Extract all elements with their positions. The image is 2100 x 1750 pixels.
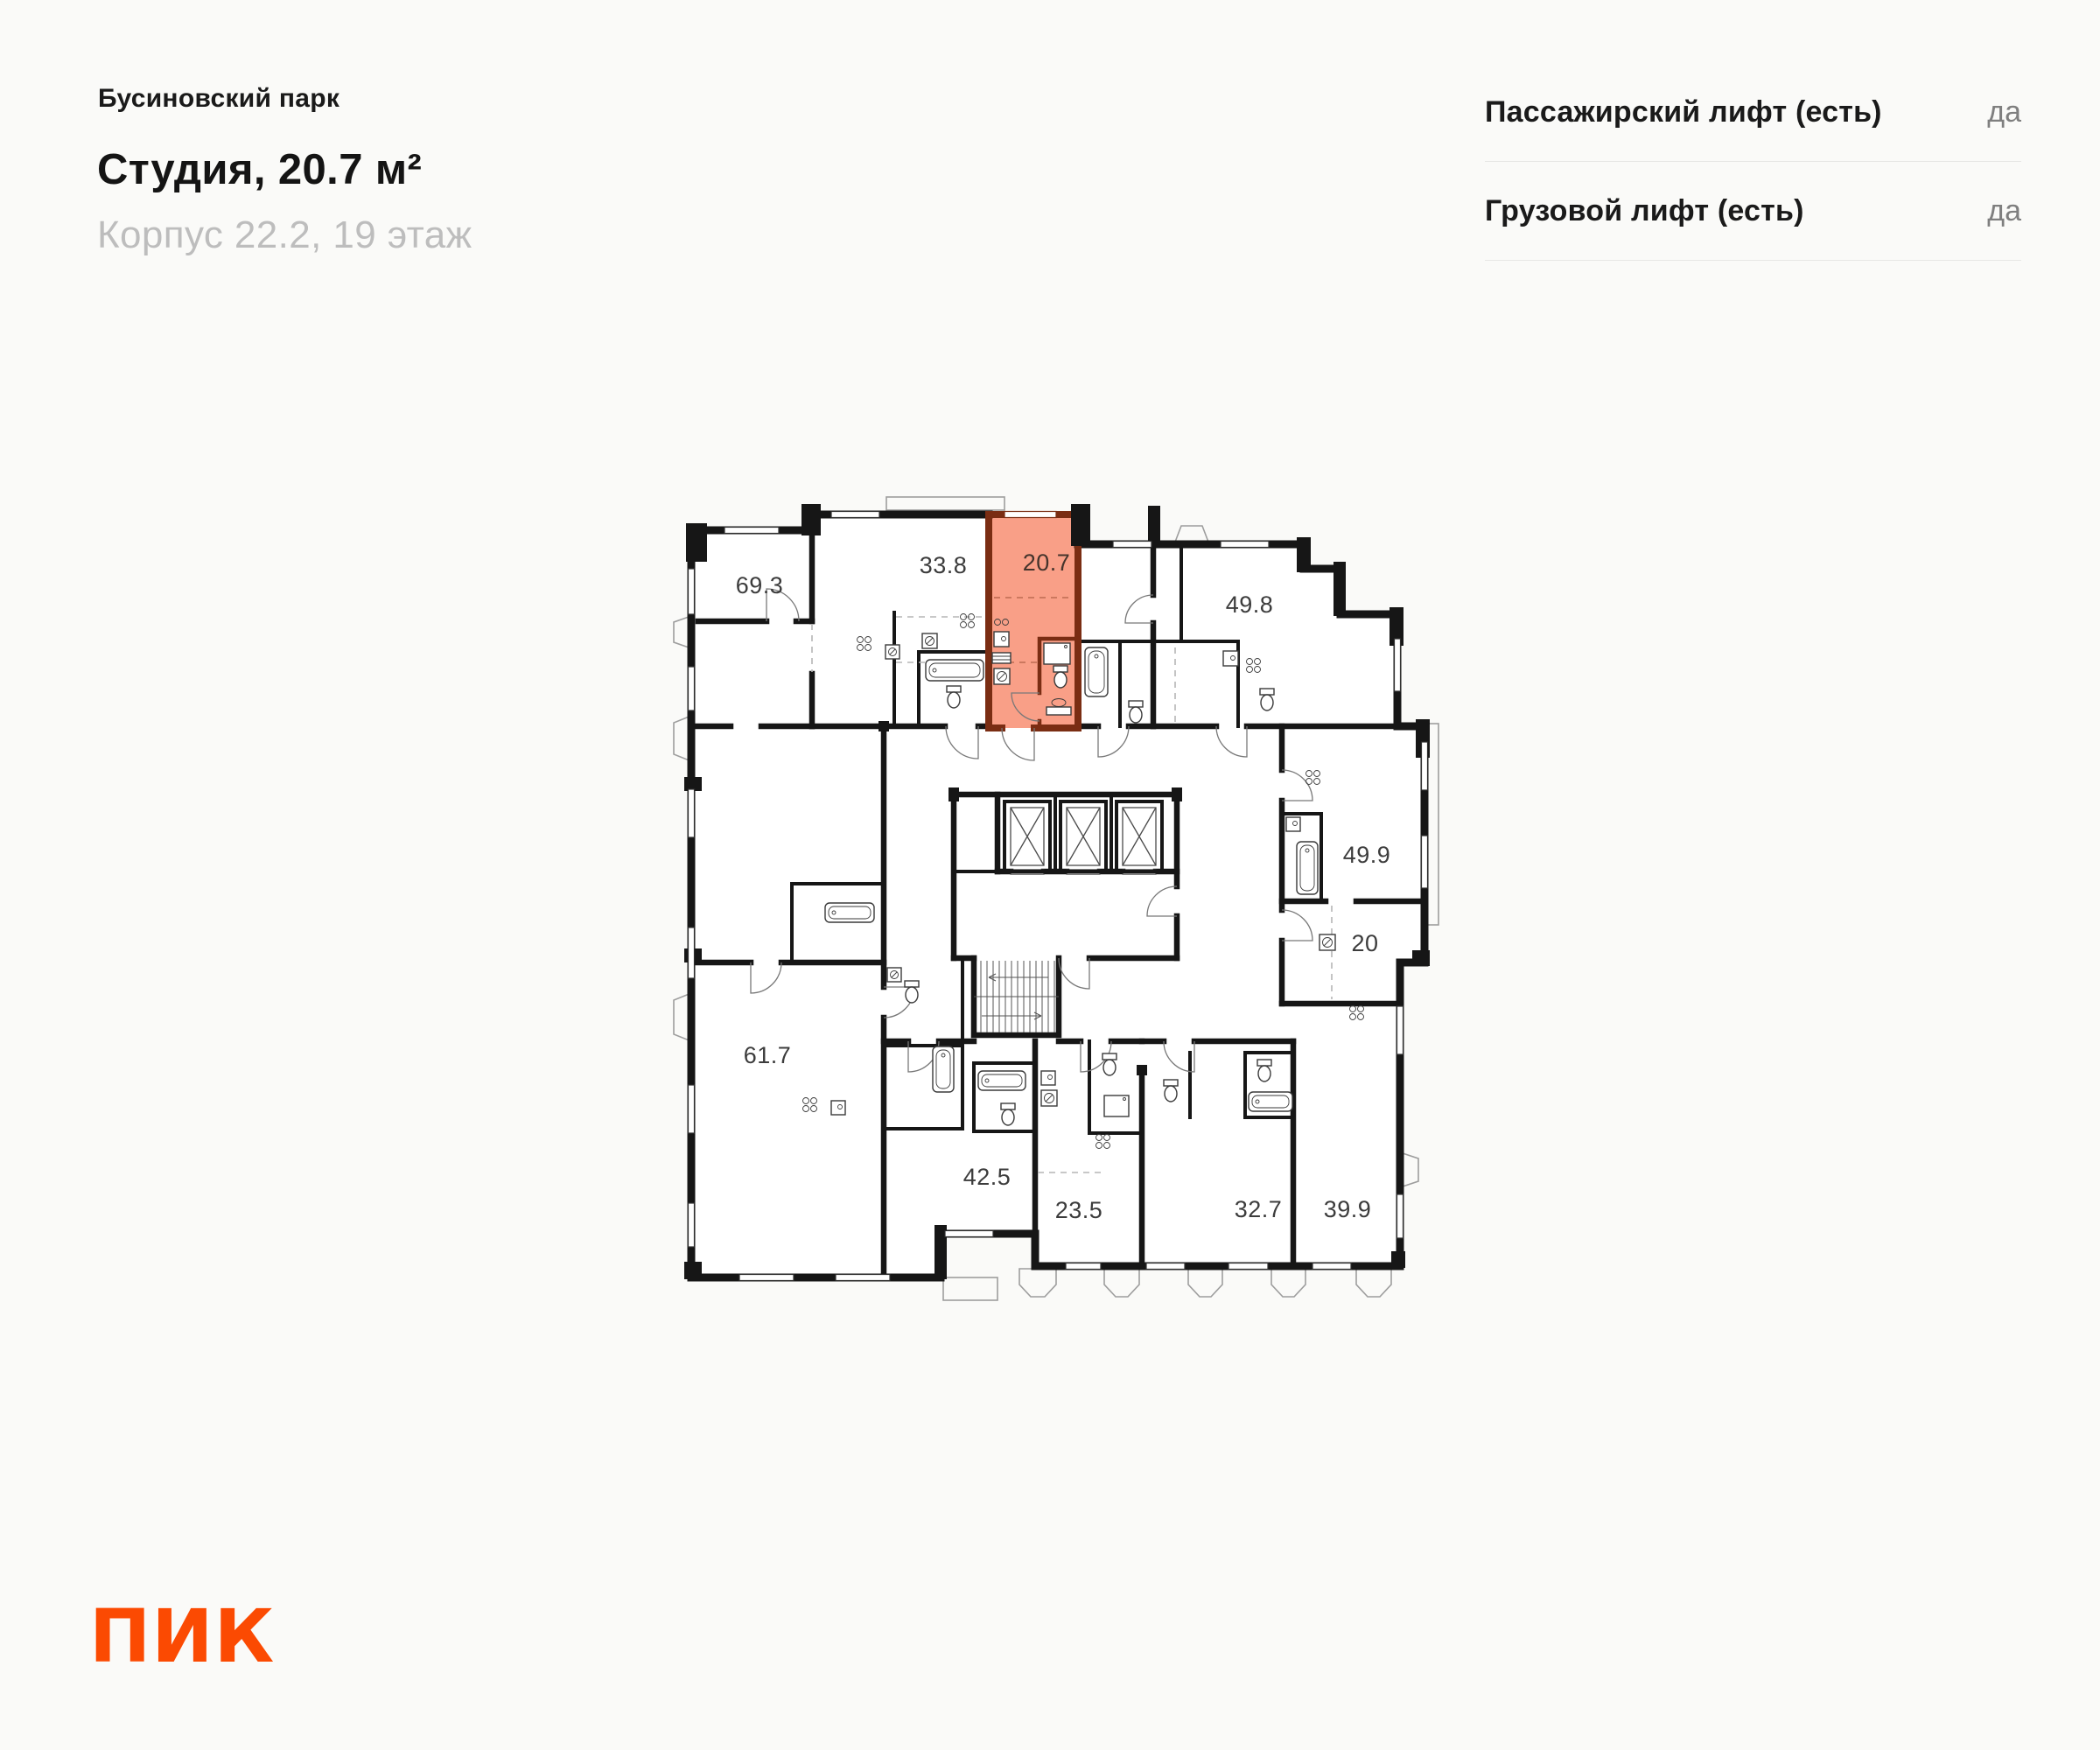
page-subtitle: Корпус 22.2, 19 этаж — [97, 213, 472, 257]
sink-icon — [994, 632, 1009, 647]
washing-machine-icon — [922, 633, 937, 648]
room-area-label: 20.7 — [1023, 549, 1071, 576]
sink-icon — [1223, 651, 1238, 666]
toilet-icon — [1164, 1080, 1178, 1102]
toilet-icon — [1257, 1060, 1271, 1081]
bathtub-icon — [1297, 842, 1318, 894]
room-area-label: 20 — [1351, 930, 1378, 956]
toilet-icon — [1102, 1053, 1116, 1075]
bathtub-icon — [1249, 1092, 1292, 1111]
sink-icon — [1286, 817, 1300, 831]
washing-machine-icon — [1041, 1090, 1057, 1106]
floor-plan-svg: 69.333.820.749.849.92061.742.523.532.739… — [647, 481, 1479, 1321]
spec-value: да — [1987, 194, 2021, 228]
toilet-icon — [1260, 689, 1274, 710]
shower-icon — [1044, 643, 1070, 664]
room-area-label: 61.7 — [744, 1042, 792, 1068]
washing-machine-icon — [887, 968, 901, 982]
room-area-label: 23.5 — [1055, 1197, 1103, 1223]
spec-row-passenger-lift: Пассажирский лифт (есть) да — [1485, 63, 2021, 162]
room-area-label: 69.3 — [736, 572, 784, 598]
room-area-label: 42.5 — [963, 1164, 1011, 1190]
spec-value: да — [1987, 95, 2021, 129]
room-area-label: 32.7 — [1235, 1196, 1283, 1222]
toilet-icon — [1053, 666, 1067, 688]
shower-icon — [1104, 1095, 1129, 1116]
bathtub-icon — [933, 1046, 954, 1092]
project-name: Бусиновский парк — [98, 84, 339, 114]
spec-row-cargo-lift: Грузовой лифт (есть) да — [1485, 162, 2021, 261]
sink-icon — [831, 1101, 845, 1115]
room-area-label: 49.8 — [1226, 591, 1274, 618]
counter-icon — [992, 653, 1011, 663]
washing-machine-icon — [1319, 934, 1335, 950]
toilet-icon — [905, 981, 919, 1003]
toilet-icon — [1001, 1103, 1015, 1125]
washing-machine-icon — [994, 668, 1010, 684]
washing-machine-icon — [885, 645, 899, 659]
room-area-label: 39.9 — [1324, 1196, 1372, 1222]
pik-logo: ПИК — [89, 1599, 275, 1673]
room-area-label: 49.9 — [1343, 842, 1391, 868]
page: Бусиновский парк Студия, 20.7 м² Корпус … — [0, 0, 2100, 1750]
bathtub-icon — [926, 660, 983, 681]
toilet-icon — [1129, 701, 1143, 723]
bathtub-icon — [1085, 647, 1108, 696]
bathtub-icon — [825, 903, 874, 922]
spec-label: Пассажирский лифт (есть) — [1485, 95, 1882, 129]
toilet-icon — [947, 686, 961, 708]
bathtub-icon — [978, 1071, 1025, 1090]
spec-label: Грузовой лифт (есть) — [1485, 194, 1804, 228]
spec-list: Пассажирский лифт (есть) да Грузовой лиф… — [1485, 63, 2021, 261]
page-title: Студия, 20.7 м² — [97, 145, 422, 194]
floor-plan: 69.333.820.749.849.92061.742.523.532.739… — [647, 481, 1479, 1321]
room-area-label: 33.8 — [920, 552, 968, 578]
sink-icon — [1041, 1071, 1055, 1085]
